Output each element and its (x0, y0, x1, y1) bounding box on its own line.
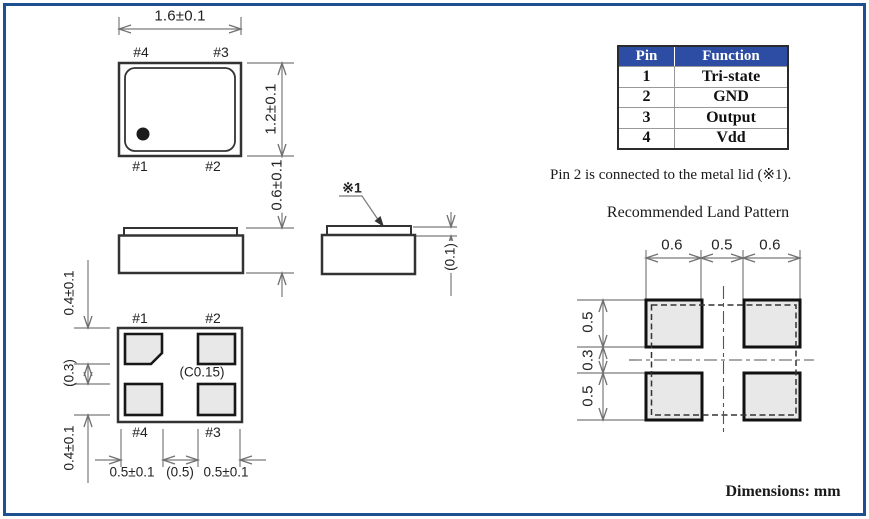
pin-function-table: Pin Function 1 Tri-state 2 GND 3 Output … (617, 45, 789, 150)
pin-number: 3 (619, 108, 675, 128)
land-pattern-view (629, 286, 814, 433)
pin-number: 4 (619, 129, 675, 149)
pad-2 (198, 334, 235, 364)
land-pad-top-left (646, 300, 702, 347)
top-view-height-dim: 1.2±0.1 (263, 83, 280, 134)
table-row: 3 Output (619, 107, 787, 128)
land-pad-top-right (744, 300, 800, 347)
land-top-dim-1: 0.6 (661, 237, 682, 254)
pin-number: 1 (619, 67, 675, 87)
table-header-function: Function (675, 47, 787, 66)
top-view-pin3-label: #3 (213, 44, 229, 60)
pad-1-chamfered (125, 334, 162, 364)
pin-function: Output (675, 108, 787, 128)
table-row: 1 Tri-state (619, 66, 787, 87)
top-view-width-dim: 1.6±0.1 (154, 8, 205, 25)
bottom-left-dim-3: 0.4±0.1 (62, 426, 77, 471)
land-top-dim-2: 0.5 (711, 237, 732, 254)
package-side-view (119, 228, 243, 273)
dimensions-unit-note: Dimensions: mm (725, 483, 840, 501)
table-header-pin: Pin (619, 47, 675, 66)
bottom-view-pin3-label: #3 (205, 424, 221, 440)
pin-function: Tri-state (675, 67, 787, 87)
chamfer-dim: (C0.15) (179, 365, 224, 380)
land-pad-bottom-left (646, 373, 702, 420)
table-row: 4 Vdd (619, 128, 787, 149)
bottom-view-pin1-label: #1 (132, 310, 148, 326)
lid-thickness-dim: (0.1) (443, 241, 458, 273)
lid-reference-mark: ※1 (342, 180, 362, 197)
bottom-bottom-dim-3: 0.5±0.1 (204, 465, 249, 480)
side-view-height-dim: 0.6±0.1 (269, 157, 286, 212)
table-header-row: Pin Function (619, 47, 787, 66)
bottom-view-pin4-label: #4 (132, 424, 148, 440)
pin-function: GND (675, 88, 787, 108)
pin-number: 2 (619, 88, 675, 108)
bottom-view-pin2-label: #2 (205, 310, 221, 326)
land-left-dim-3: 0.5 (580, 385, 597, 406)
bottom-left-dim-1: 0.4±0.1 (62, 271, 77, 316)
pad-4 (125, 384, 162, 415)
top-view-pin2-label: #2 (205, 158, 221, 174)
table-row: 2 GND (619, 87, 787, 108)
land-pattern-title: Recommended Land Pattern (607, 204, 789, 222)
land-top-dim-3: 0.6 (759, 237, 780, 254)
lid-connection-note: Pin 2 is connected to the metal lid (※1)… (550, 165, 791, 184)
component-drawing-sheet: 1.6±0.1 1.2±0.1 #4 #3 #1 #2 0.6±0.1 ※1 (… (0, 0, 869, 519)
bottom-left-dim-2: (0.3) (62, 359, 77, 387)
package-end-view (322, 226, 415, 274)
land-pad-bottom-right (744, 373, 800, 420)
bottom-bottom-dim-1: 0.5±0.1 (110, 465, 155, 480)
top-view-pin4-label: #4 (133, 44, 149, 60)
land-left-dim-2: 0.3 (580, 349, 597, 370)
top-view-pin1-label: #1 (132, 158, 148, 174)
bottom-bottom-dim-2: (0.5) (166, 465, 194, 480)
pad-3 (198, 384, 235, 415)
pin-function: Vdd (675, 129, 787, 149)
land-left-dim-1: 0.5 (580, 311, 597, 332)
package-top-view (119, 63, 241, 156)
pin1-index-dot (137, 128, 150, 141)
